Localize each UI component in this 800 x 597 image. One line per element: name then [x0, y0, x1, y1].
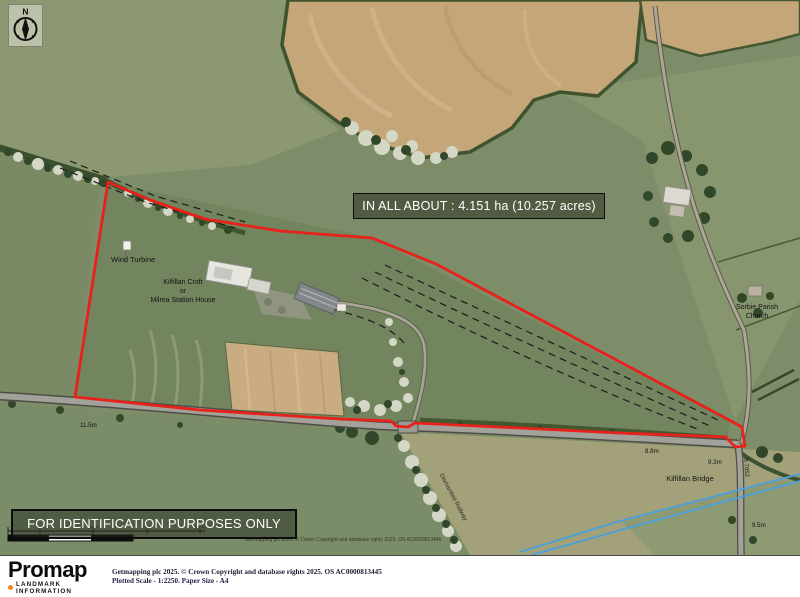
- label-croft-3: Milrea Station House: [151, 297, 216, 304]
- footer-credits: Getmapping plc 2025. © Crown Copyright a…: [112, 568, 382, 586]
- landmark-dot-icon: [8, 585, 13, 590]
- landmark-label: LANDMARK INFORMATION: [16, 581, 100, 595]
- identification-box: FOR IDENTIFICATION PURPOSES ONLY: [11, 509, 297, 539]
- label-wind-turbine: Wind Turbine: [111, 255, 155, 264]
- label-church-1: Sorbie Parish: [736, 304, 778, 311]
- credit-line-2: Plotted Scale - 1:2250. Paper Size - A4: [112, 577, 382, 586]
- label-croft-2: or: [180, 288, 187, 295]
- area-annotation-box: IN ALL ABOUT : 4.151 ha (10.257 acres): [353, 193, 605, 219]
- north-letter: N: [22, 7, 28, 17]
- compass-needle-icon: [22, 17, 29, 41]
- promap-plan-print: Wind Turbine Kilfillan Croft or Milrea S…: [0, 0, 800, 597]
- label-croft-1: Kilfillan Croft: [163, 279, 202, 286]
- ploughed-patch: [225, 342, 344, 416]
- label-bridge: Kilfillan Bridge: [666, 474, 714, 483]
- credit-line-1: Getmapping plc 2025. © Crown Copyright a…: [112, 568, 382, 577]
- label-width-left: 11.5m: [80, 422, 97, 429]
- aerial-map-canvas: Wind Turbine Kilfillan Croft or Milrea S…: [0, 0, 800, 555]
- label-width-bottom: 9.5m: [752, 522, 766, 529]
- promap-logo-text: Promap: [8, 560, 100, 580]
- label-width-right: 9.3m: [708, 459, 722, 466]
- aerial-map: Wind Turbine Kilfillan Croft or Milrea S…: [0, 0, 800, 555]
- promap-logo: Promap LANDMARK INFORMATION: [8, 560, 100, 595]
- footer: Promap LANDMARK INFORMATION Getmapping p…: [0, 555, 800, 597]
- label-width-mid: 8.8m: [645, 448, 659, 455]
- identification-text: FOR IDENTIFICATION PURPOSES ONLY: [27, 516, 281, 531]
- north-compass: N: [8, 4, 43, 47]
- area-annotation-text: IN ALL ABOUT : 4.151 ha (10.257 acres): [362, 199, 595, 213]
- label-church-2: Church: [746, 313, 769, 320]
